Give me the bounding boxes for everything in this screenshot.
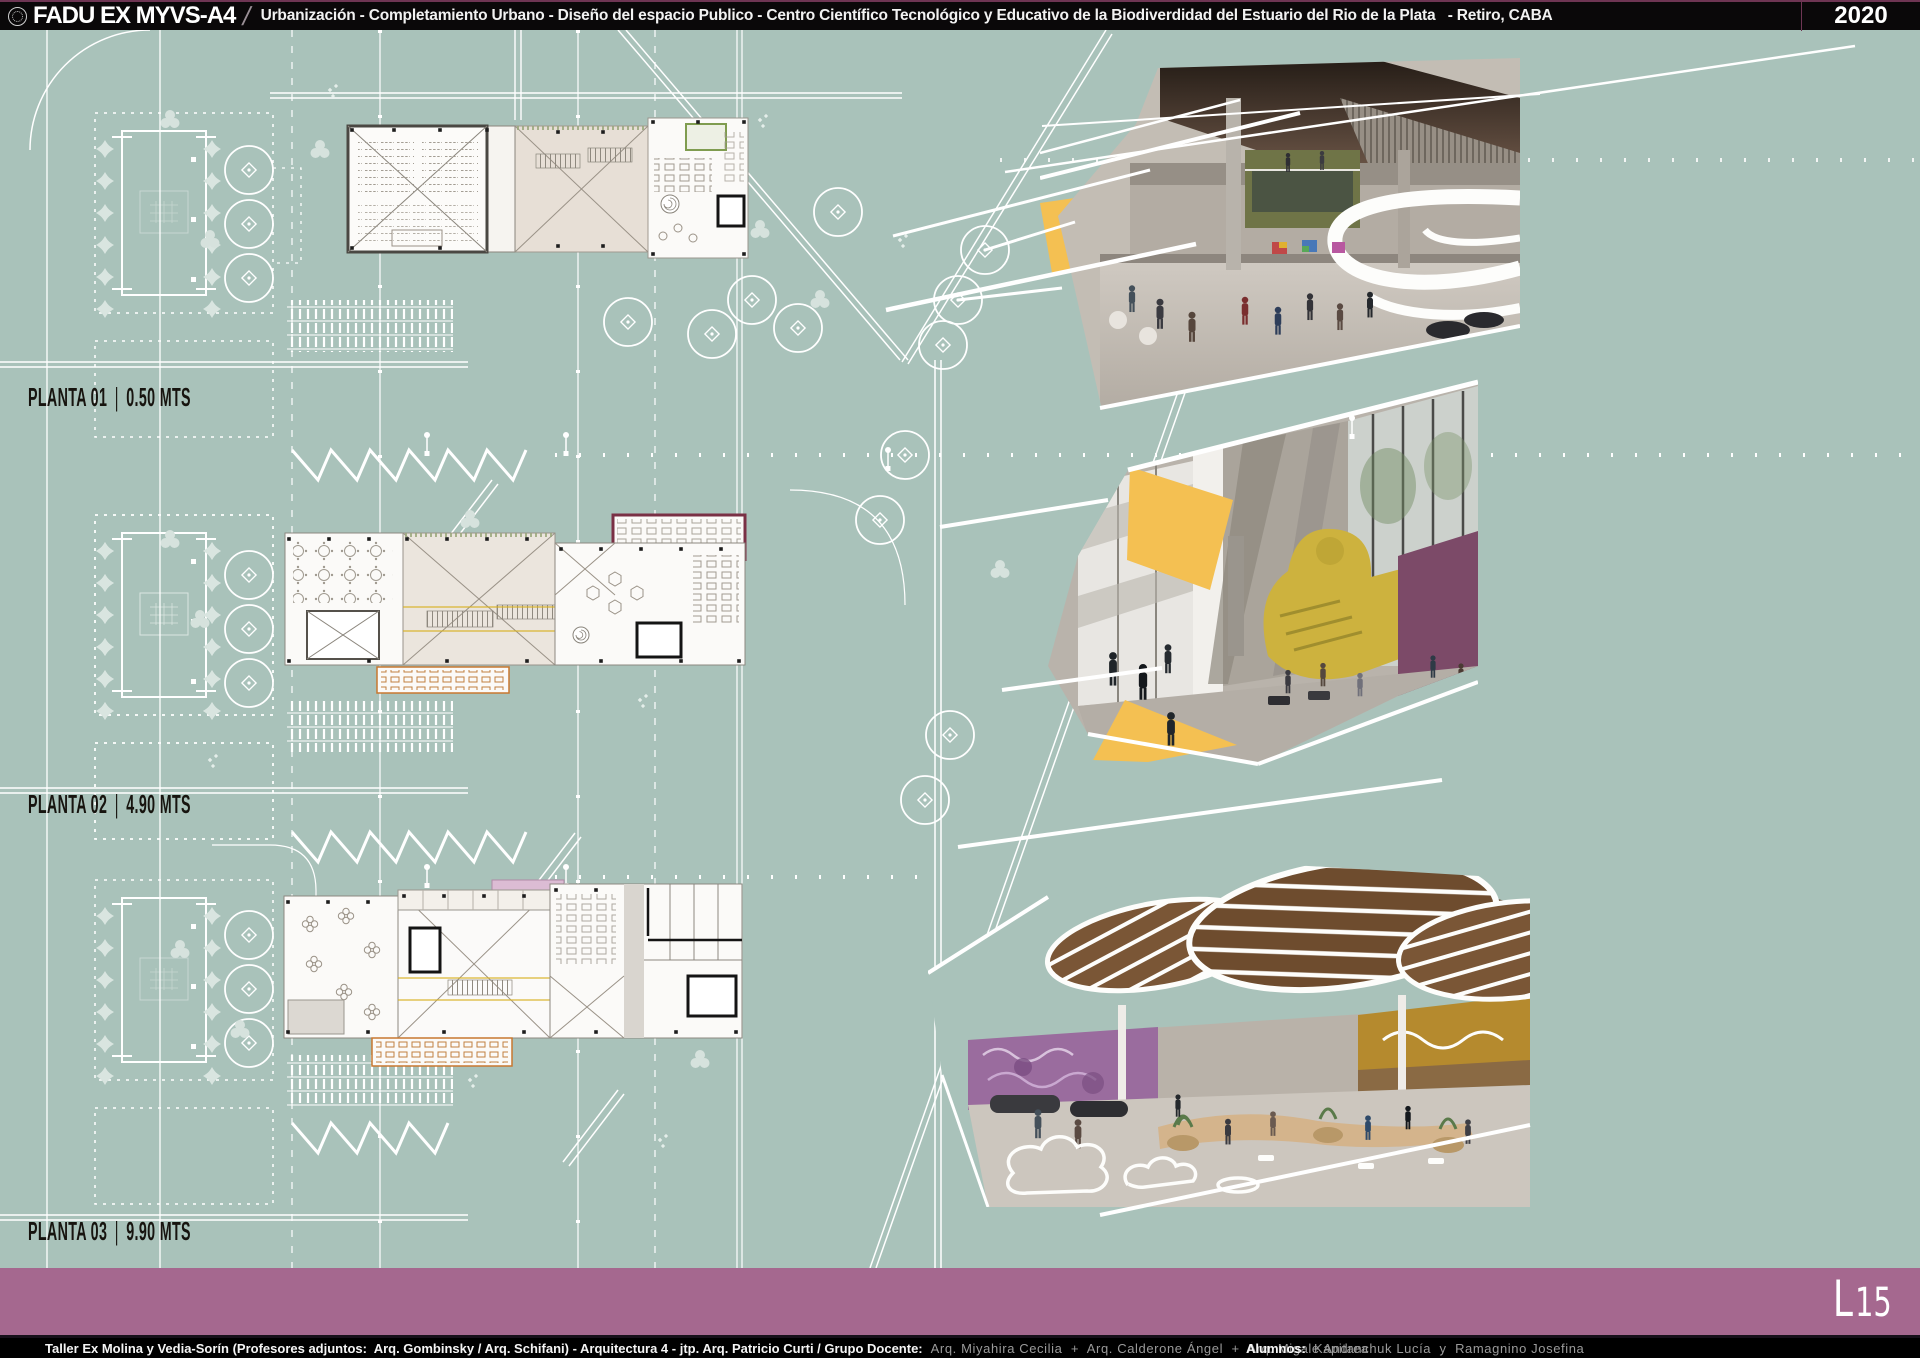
render-terrace-oval-canopies xyxy=(928,855,1530,1207)
plan-name: PLANTA 03 xyxy=(28,1218,107,1247)
presentation-board: PLANTA 01 | 0.50 MTS PLANTA 02 | 4.90 MT… xyxy=(0,0,1920,1358)
plan-label-planta-02: PLANTA 02 | 4.90 MTS xyxy=(28,791,191,820)
plan-label-planta-01: PLANTA 01 | 0.50 MTS xyxy=(28,384,191,413)
project-title: Urbanización - Completamiento Urbano - D… xyxy=(261,7,1801,25)
plan-name: PLANTA 01 xyxy=(28,384,107,413)
plan-label-divider: | xyxy=(115,1218,119,1247)
floor-plan-3 xyxy=(284,880,742,1066)
canopy-ellipses xyxy=(1040,855,1530,1010)
credits-left: Taller Ex Molina y Vedia-Sorín (Profesor… xyxy=(45,1341,1369,1356)
year-badge: 2020 xyxy=(1801,1,1920,31)
students-names: Kapitanchuk Lucía y Ramagnino Josefina xyxy=(1314,1341,1584,1356)
footprint-flowers xyxy=(96,140,221,318)
uba-crest-icon xyxy=(8,7,27,26)
sheet-digits: 15 xyxy=(1855,1280,1892,1326)
plan-label-divider: | xyxy=(115,384,119,413)
credits-faculty: Taller Ex Molina y Vedia-Sorín (Profesor… xyxy=(45,1341,923,1356)
plan-level: 0.50 MTS xyxy=(126,384,191,413)
render-lobby-spiral-ramp xyxy=(1040,58,1520,413)
station-footprint-band-3 xyxy=(95,880,273,1204)
credits-bar: Taller Ex Molina y Vedia-Sorín (Profesor… xyxy=(0,1338,1920,1358)
plan-level: 9.90 MTS xyxy=(126,1218,191,1247)
render-hall-yellow-stair xyxy=(928,366,1478,766)
sheet-number: L 15 xyxy=(1833,1277,1892,1326)
sheet-accent-bar: L 15 xyxy=(0,1268,1920,1338)
gallery-art xyxy=(1272,240,1345,254)
plan-name: PLANTA 02 xyxy=(28,791,107,820)
students-label: Alumnos: xyxy=(1246,1341,1306,1356)
plan-label-planta-03: PLANTA 03 | 9.90 MTS xyxy=(28,1218,191,1247)
sheet-letter: L xyxy=(1833,1277,1853,1321)
credits-right: Alumnos: Kapitanchuk Lucía y Ramagnino J… xyxy=(1246,1341,1584,1356)
floor-plan-2 xyxy=(285,515,745,693)
header-divider-slash: / xyxy=(240,1,254,32)
plan-level: 4.90 MTS xyxy=(126,791,191,820)
title-bar: FADU EX MYVS-A4 / Urbanización - Complet… xyxy=(0,0,1920,30)
brand-block: FADU EX MYVS-A4 xyxy=(0,2,235,30)
brand-title: FADU EX MYVS-A4 xyxy=(33,2,235,31)
floor-plan-1 xyxy=(348,118,748,258)
plan-label-divider: | xyxy=(115,791,119,820)
